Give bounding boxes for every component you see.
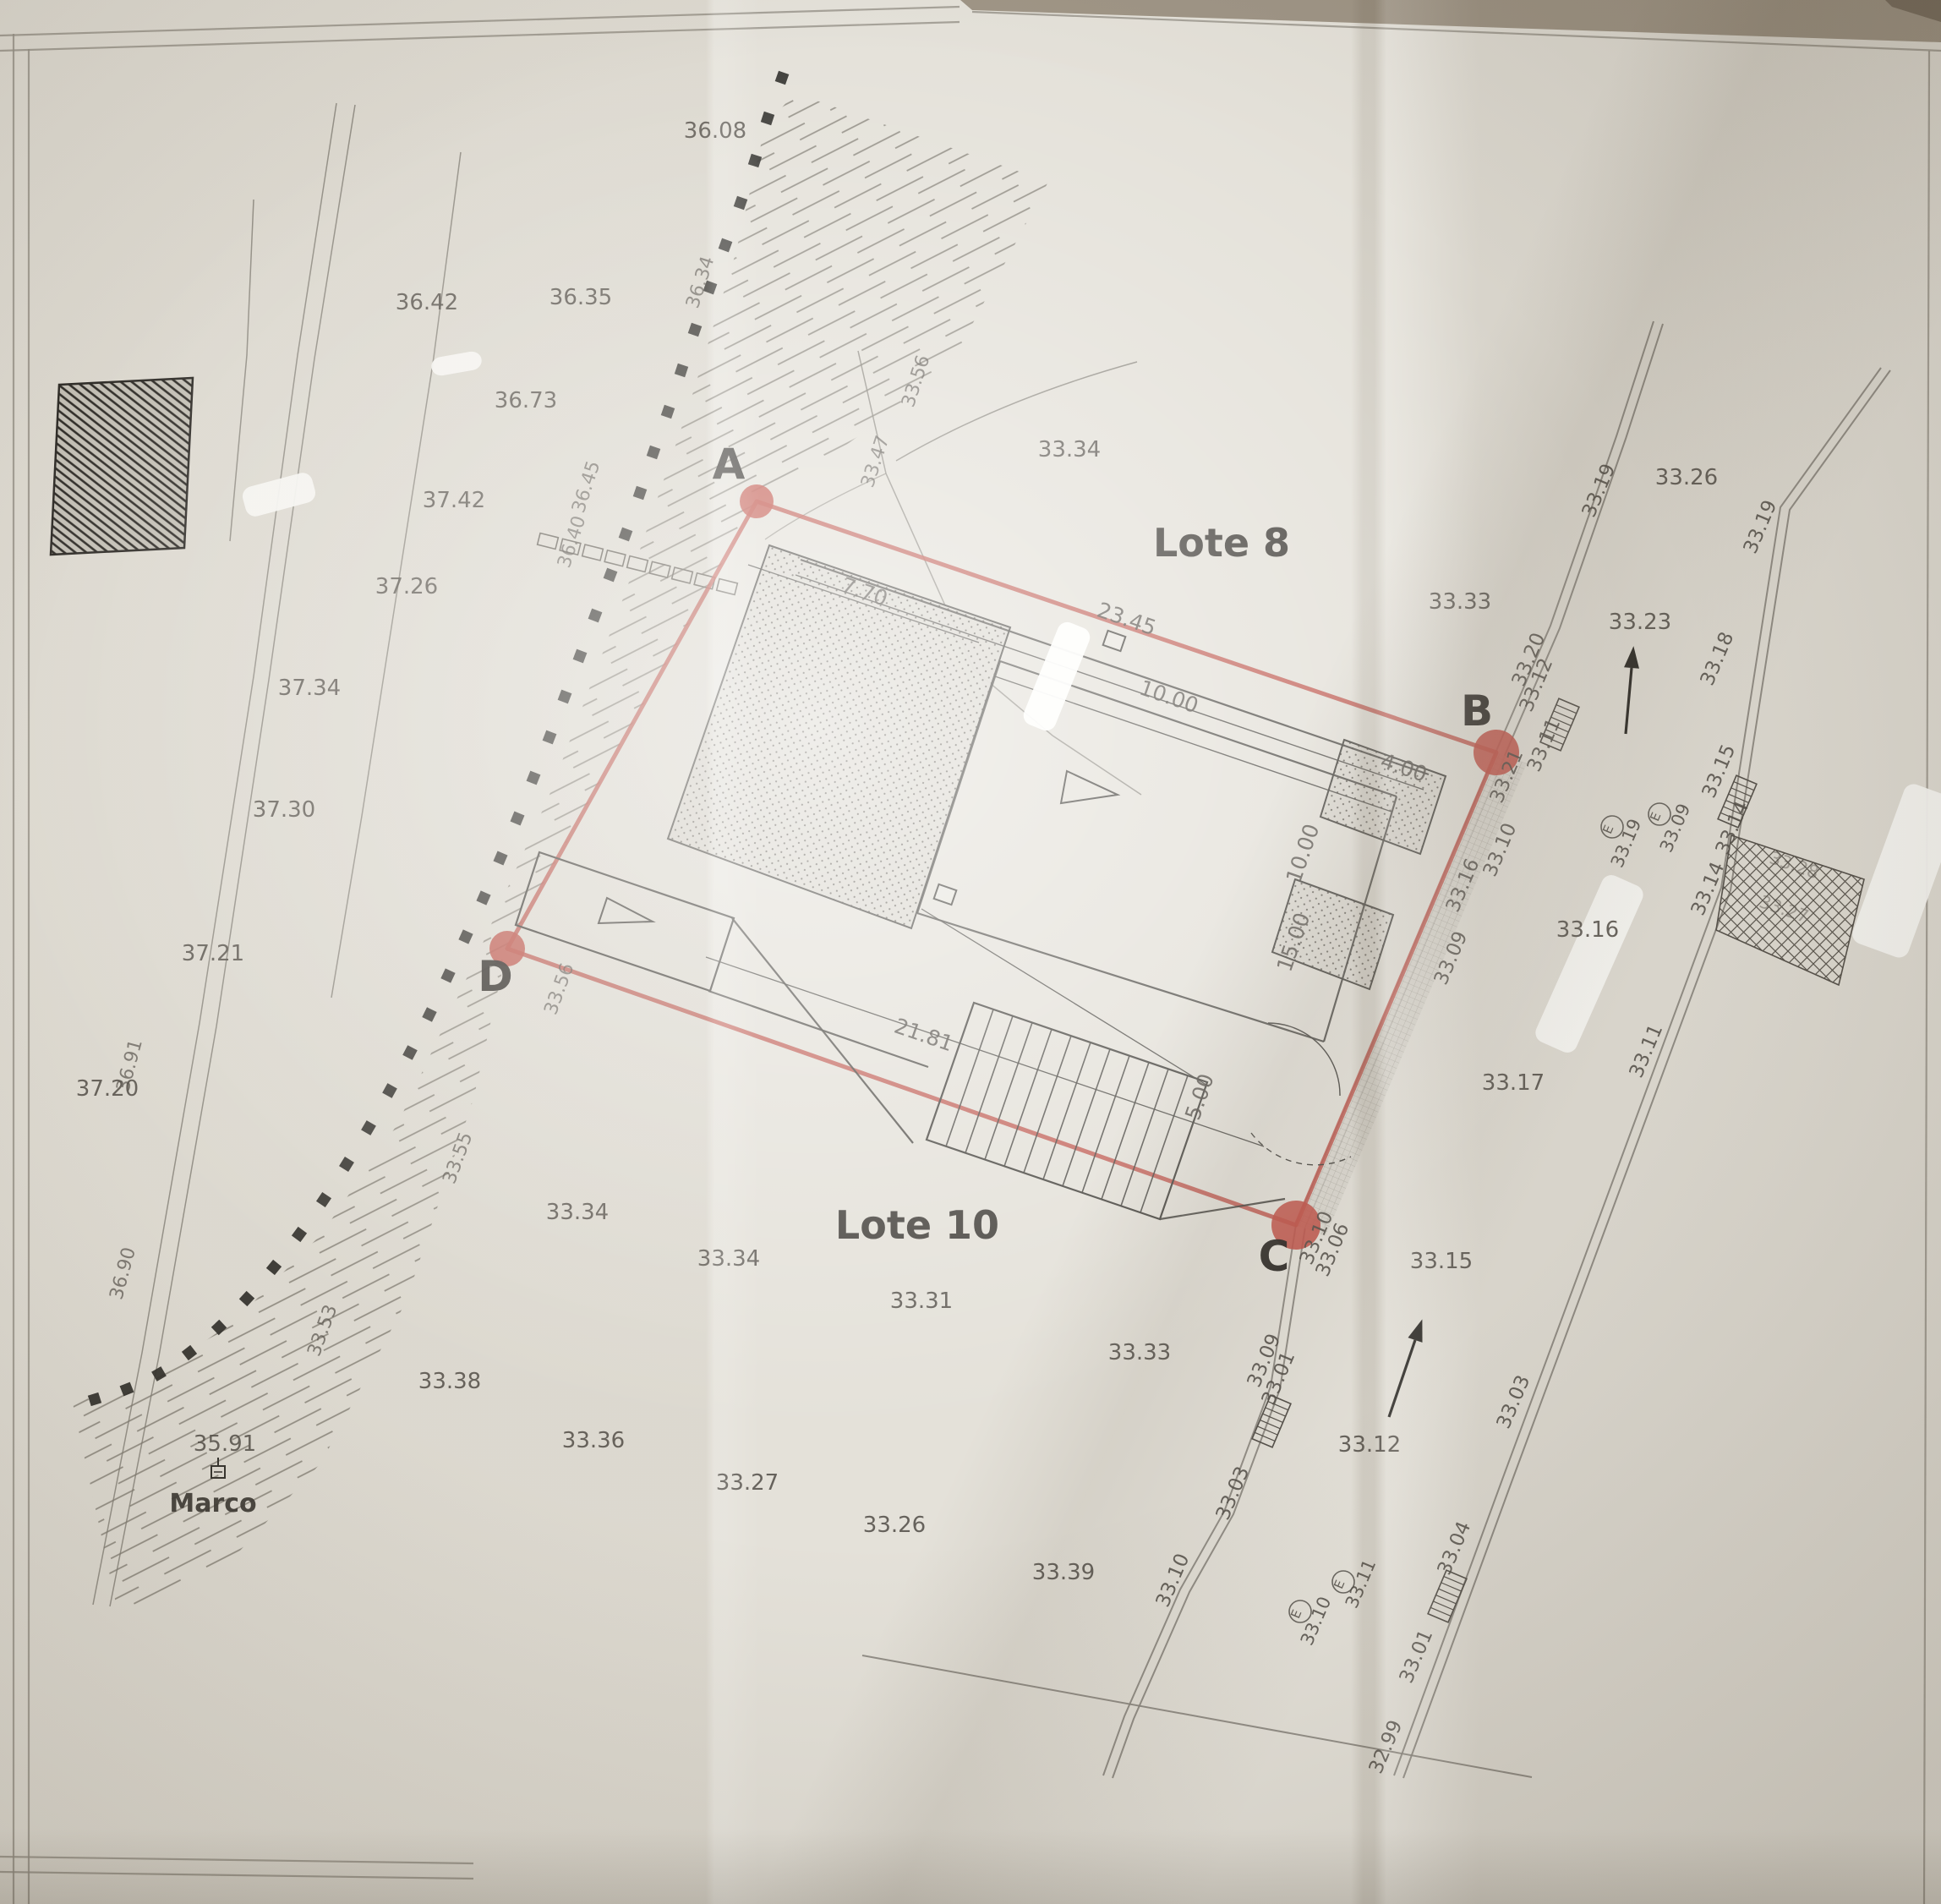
wall-line xyxy=(946,1009,993,1146)
sheet-border-line xyxy=(0,1857,473,1863)
elevation-label: 37.34 xyxy=(278,676,341,701)
curb-hatch-box xyxy=(1428,1570,1467,1622)
terrain-elevation-label: 36.90 xyxy=(106,1245,139,1302)
wall-line xyxy=(1004,1029,1052,1166)
terrain-elevation-label: 36.91 xyxy=(112,1037,146,1094)
hatched-building-footprint xyxy=(51,378,193,555)
elevation-label: 33.15 xyxy=(1410,1249,1473,1274)
wall-line xyxy=(965,1016,1013,1153)
whiteout-streak xyxy=(1020,619,1093,734)
labels: 36.0836.4236.3536.7337.4237.2637.3437.30… xyxy=(76,118,1782,1777)
elevation-label: 37.21 xyxy=(182,941,244,966)
boundary-dash-square xyxy=(422,1007,436,1021)
pole-elevation-label: 33.10 xyxy=(1297,1594,1336,1649)
dimension-label: 21.81 xyxy=(891,1014,956,1057)
retaining-step-box xyxy=(582,544,604,561)
boundary-dash-square xyxy=(647,446,661,460)
boundary-dash-square xyxy=(719,238,733,253)
boundary-dash-square xyxy=(440,968,455,982)
hatched-building xyxy=(51,378,193,555)
terrain-elevation-label: 33.47 xyxy=(857,433,894,490)
curb-tick xyxy=(1255,1432,1275,1441)
wall-line xyxy=(917,913,1324,1042)
boundary-dash-square xyxy=(382,1083,397,1098)
door-square-marker xyxy=(1103,631,1126,651)
boundary-dash-square xyxy=(633,486,647,500)
curb-tick xyxy=(1266,1408,1286,1416)
curb-tick xyxy=(1439,1589,1459,1597)
sheet-border-line xyxy=(0,1872,473,1879)
north-arrow-head xyxy=(1624,646,1639,669)
boundary-dash-square xyxy=(493,851,507,865)
road-station-label: 32.99 xyxy=(1365,1717,1408,1777)
elevation-label: 36.42 xyxy=(396,290,458,315)
boundary-dash-square xyxy=(619,528,633,542)
road-station-label: 33.11 xyxy=(1523,715,1566,775)
boundary-dash-square xyxy=(688,323,703,337)
wall-line xyxy=(1140,1075,1188,1212)
curb-tick xyxy=(1433,1601,1453,1610)
elevation-label: 37.30 xyxy=(253,797,315,823)
boundary-dash-square xyxy=(458,929,473,944)
pole-symbol: E xyxy=(1331,1578,1348,1591)
road-station-label: 33.10 xyxy=(1152,1551,1195,1611)
wall-line xyxy=(1063,1049,1110,1186)
sheet-border-line xyxy=(0,22,960,51)
boundary-dash-square xyxy=(511,812,525,826)
curb-tick xyxy=(1430,1607,1451,1616)
elevation-label: 36.35 xyxy=(549,285,612,310)
dimension-label: 23.45 xyxy=(1094,598,1159,641)
elevation-label: 33.34 xyxy=(1038,437,1101,462)
curb-tick xyxy=(1257,1426,1277,1435)
elevation-label: 33.12 xyxy=(1338,1432,1401,1458)
road-station-label: 33.15 xyxy=(1698,741,1741,802)
photo-of-site-plan: 33.2833.27E33.19E33.09E33.10E33.1136.083… xyxy=(0,0,1941,1904)
crosshatch-patch: 33.2833.27 xyxy=(1716,835,1864,985)
sheet-border-line xyxy=(0,7,960,36)
elevation-label: 33.27 xyxy=(716,1470,779,1496)
road-station-label: 33.03 xyxy=(1212,1464,1255,1524)
elevation-label: 33.26 xyxy=(1655,465,1718,490)
retaining-step-box xyxy=(538,533,559,550)
wall-line xyxy=(1102,1063,1149,1200)
terrain-elevation-label: 36.40 xyxy=(554,513,590,571)
wall-line xyxy=(1082,1056,1129,1193)
dashed-boundary xyxy=(88,71,789,1406)
corner-point-label: D xyxy=(478,952,513,1001)
corner-point-label: B xyxy=(1461,687,1493,736)
area-label: Lote 10 xyxy=(835,1202,999,1248)
triangle-marker xyxy=(1061,771,1118,803)
boundary-dash-square xyxy=(316,1192,331,1207)
terrain-elevation-label: 33.56 xyxy=(540,960,578,1018)
road-station-label: 33.18 xyxy=(1697,629,1739,689)
boundary-dash-square xyxy=(266,1260,282,1275)
boundary-dash-square xyxy=(573,649,588,664)
boundary-dash-square xyxy=(543,730,557,745)
boundary-dash-square xyxy=(361,1120,376,1135)
pole-elevation-label: 33.19 xyxy=(1607,816,1646,871)
boundary-dash-square xyxy=(476,890,490,905)
road-station-label: 33.03 xyxy=(1493,1372,1535,1432)
elevation-label: 37.42 xyxy=(423,488,485,513)
terrain-elevation-label: 36.34 xyxy=(682,254,719,311)
boundary-dash-square xyxy=(527,771,541,785)
triangle-marker xyxy=(599,898,653,923)
north-arrow-shaft xyxy=(1626,668,1632,734)
area-label: Lote 8 xyxy=(1153,520,1290,566)
boundary-dash-square xyxy=(734,196,748,211)
boundary-dash-square xyxy=(604,568,618,583)
elevation-label: 35.91 xyxy=(194,1431,256,1457)
boundary-dash-square xyxy=(661,405,675,419)
elevation-label: 33.31 xyxy=(890,1288,953,1314)
curb-tick xyxy=(1556,705,1577,714)
north-arrow-head xyxy=(1408,1319,1422,1343)
terrain-elevation-label: 36.45 xyxy=(568,458,604,516)
elevation-label: 33.23 xyxy=(1609,610,1671,635)
wall-line xyxy=(1121,1069,1168,1206)
corner-point-label: C xyxy=(1259,1232,1290,1281)
dimension-label: 10.00 xyxy=(1282,821,1325,886)
corner-dot-a xyxy=(740,484,774,518)
wall-line xyxy=(1024,1036,1071,1173)
table-surface-strip xyxy=(960,0,1941,42)
boundary-dash-square xyxy=(402,1045,418,1060)
area-label: Marco xyxy=(169,1489,256,1518)
elevation-label: 33.34 xyxy=(697,1246,760,1272)
elevation-label: 36.73 xyxy=(495,388,557,413)
site-plan-drawing: 33.2833.27E33.19E33.09E33.10E33.1136.083… xyxy=(0,0,1941,1904)
road-station-label: 33.19 xyxy=(1578,461,1621,521)
door-arc xyxy=(1268,1023,1340,1096)
whiteout-streak xyxy=(1533,872,1647,1056)
elevation-label: 33.38 xyxy=(418,1369,481,1394)
pole-symbol: E xyxy=(1647,810,1664,823)
road-station-label: 33.19 xyxy=(1740,497,1782,557)
boundary-dash-square xyxy=(558,690,572,704)
elevation-label: 33.33 xyxy=(1429,589,1491,615)
curb-tick xyxy=(1435,1595,1456,1604)
elevation-label: 33.26 xyxy=(863,1513,926,1538)
north-arrow-shaft xyxy=(1389,1340,1415,1417)
pole-symbol: E xyxy=(1599,823,1616,836)
elevation-label: 33.33 xyxy=(1108,1340,1171,1365)
curb-tick xyxy=(1441,1583,1462,1591)
retaining-step-box xyxy=(604,550,626,566)
whiteout-streak xyxy=(240,471,317,519)
pole-elevation-label: 33.09 xyxy=(1656,801,1695,856)
boundary-dash-square xyxy=(775,71,790,85)
sheet-border-line xyxy=(1924,51,1929,1904)
elevation-label: 33.16 xyxy=(1556,917,1619,943)
elevation-label: 33.36 xyxy=(562,1428,625,1453)
stippled-patio xyxy=(668,545,1010,928)
road-station-label: 33.01 xyxy=(1396,1627,1438,1687)
retaining-step-box xyxy=(717,579,738,595)
wall-line xyxy=(985,1023,1032,1160)
elevation-label: 37.26 xyxy=(375,574,438,599)
boundary-dash-square xyxy=(292,1227,307,1242)
boundary-dash-square xyxy=(588,609,603,623)
pole-symbol: E xyxy=(1288,1607,1304,1621)
curb-tick xyxy=(1260,1420,1280,1429)
curb-tick xyxy=(1554,711,1574,719)
paper-sheet xyxy=(960,0,1941,42)
whiteout-streak xyxy=(430,350,484,377)
wall-line xyxy=(921,909,1209,1086)
elevation-label: 33.39 xyxy=(1032,1560,1095,1585)
elevation-label: 36.08 xyxy=(684,118,746,144)
wall-line xyxy=(1043,1042,1091,1179)
door-square-marker xyxy=(934,884,957,905)
corner-point-label: A xyxy=(713,440,746,489)
boundary-dash-square xyxy=(675,364,688,377)
boundary-dash-square xyxy=(339,1157,354,1172)
curb-tick xyxy=(1731,788,1752,796)
elevation-label: 33.34 xyxy=(546,1200,609,1225)
elevation-label: 33.17 xyxy=(1482,1070,1545,1096)
curb-tick xyxy=(1263,1414,1283,1422)
